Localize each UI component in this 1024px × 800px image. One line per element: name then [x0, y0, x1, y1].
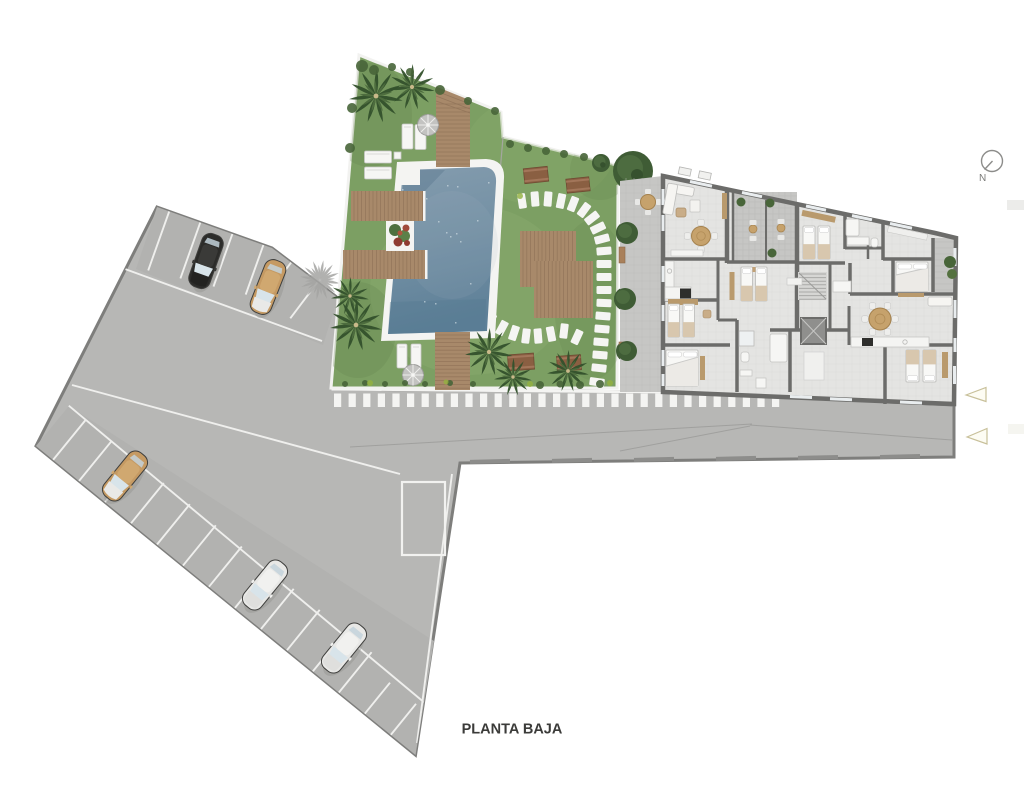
svg-text:PLANTA BAJA: PLANTA BAJA	[462, 722, 563, 738]
svg-text:N: N	[979, 173, 986, 184]
